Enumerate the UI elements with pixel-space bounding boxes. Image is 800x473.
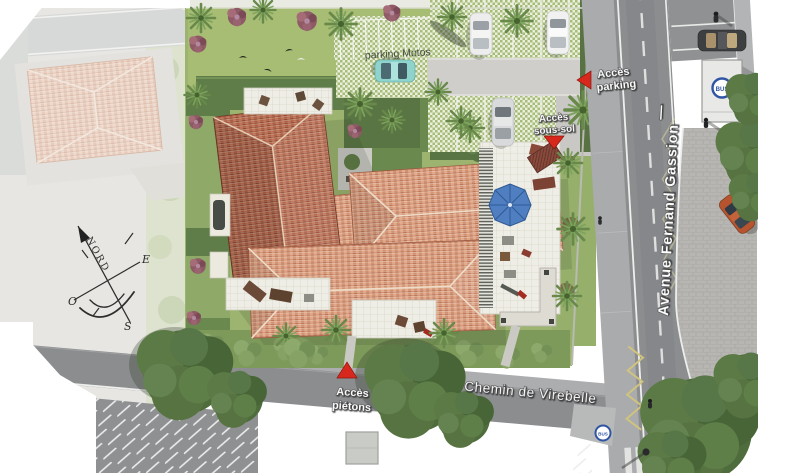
compass-south-label: S (124, 320, 132, 333)
pedestrian-3 (648, 399, 652, 409)
parasol (489, 184, 531, 226)
utility-shed (346, 432, 378, 464)
parking-aisle (428, 58, 602, 96)
pedestrian-path (348, 336, 352, 368)
compass-east-label: E (141, 253, 150, 266)
site-plan-canvas: BUS BUS (0, 0, 800, 473)
balcony-railing (479, 148, 493, 308)
site-plan: BUS BUS (0, 0, 800, 473)
bus-stop-pad (570, 404, 616, 446)
svg-text:piétons: piétons (332, 400, 372, 415)
parked-car-white-2 (543, 11, 569, 58)
avenue-street-dash: — (653, 104, 670, 120)
svg-text:Accès: Accès (539, 112, 570, 125)
pedestrian-4 (598, 216, 602, 225)
parked-car-white-1 (466, 13, 492, 60)
north-terrace (244, 88, 332, 114)
parked-car-dark (698, 30, 746, 51)
compass-west-label: O (68, 295, 77, 308)
south-terrace-west (226, 278, 330, 310)
bus-road-sign: BUS (596, 426, 611, 441)
south-terrace-center (352, 300, 436, 338)
parked-car-silver (488, 98, 514, 149)
svg-text:Accès: Accès (336, 386, 369, 400)
west-balconies (210, 194, 230, 278)
svg-text:BUS: BUS (598, 431, 608, 436)
